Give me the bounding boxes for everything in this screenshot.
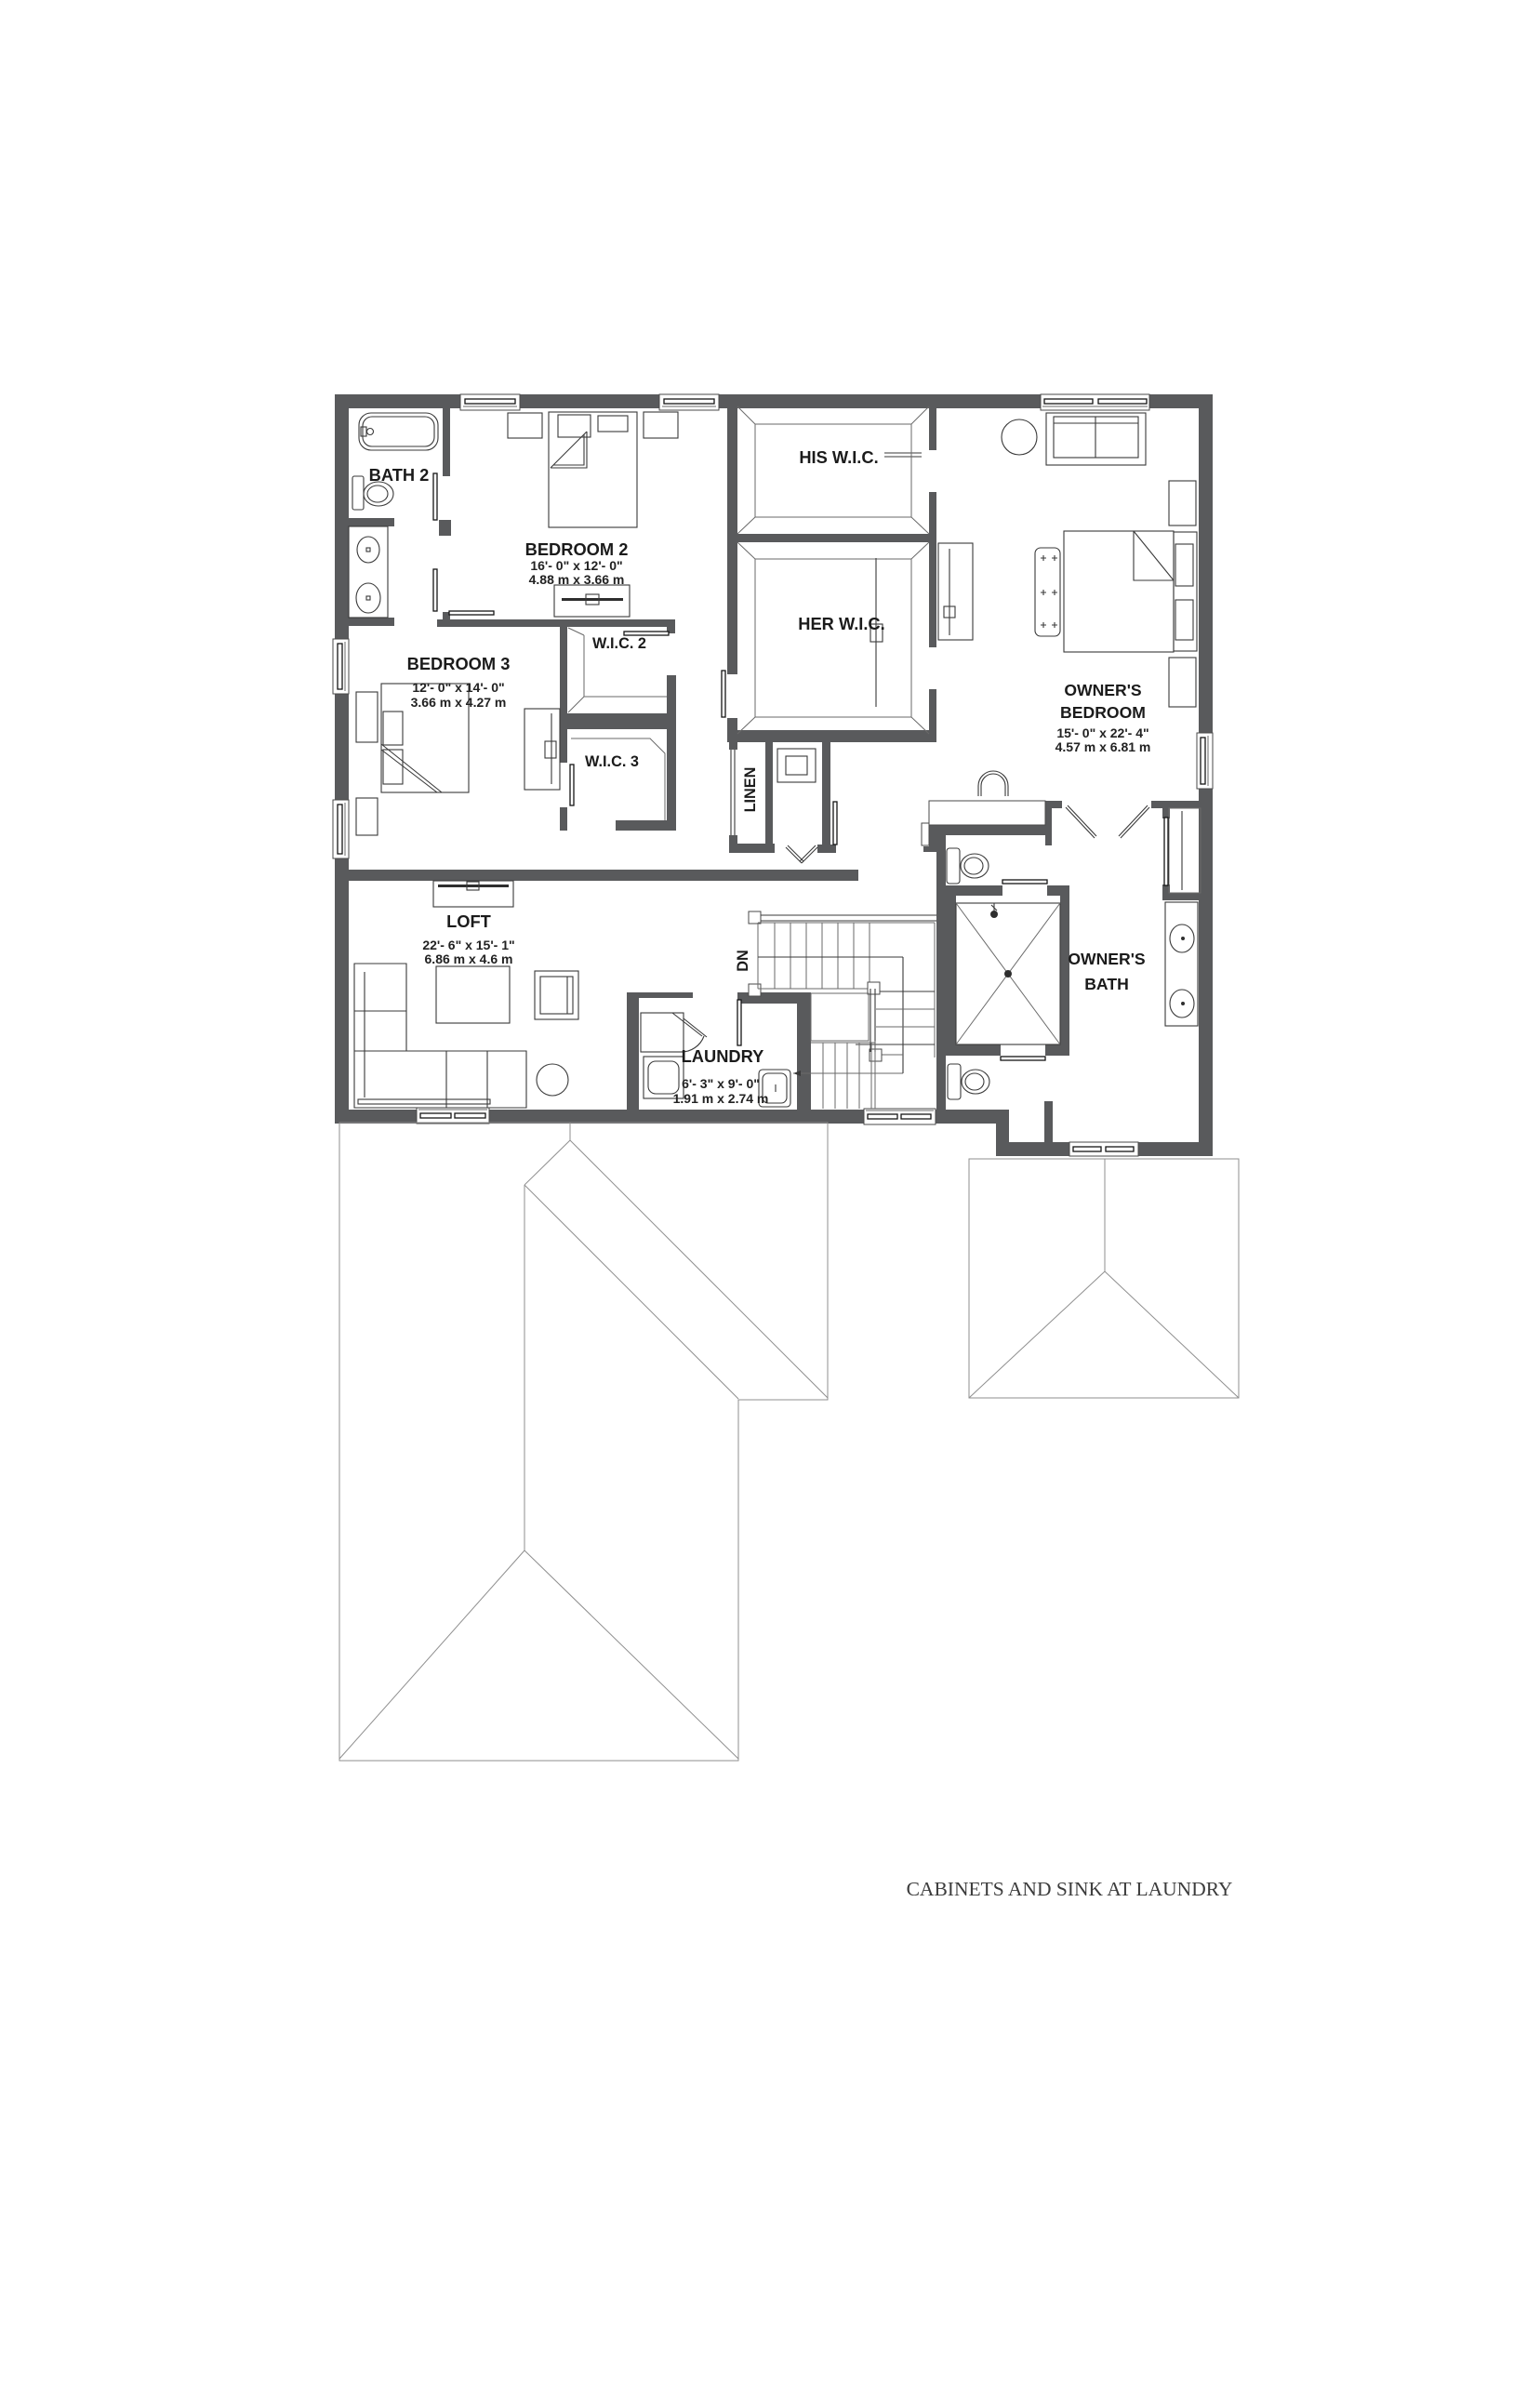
- svg-text:OWNER'S: OWNER'S: [1064, 681, 1142, 699]
- svg-text:4.57 m x 6.81 m: 4.57 m x 6.81 m: [1055, 739, 1151, 754]
- svg-text:BEDROOM: BEDROOM: [1060, 703, 1146, 722]
- svg-text:OWNER'S: OWNER'S: [1068, 950, 1146, 968]
- svg-text:LAUNDRY: LAUNDRY: [682, 1046, 764, 1066]
- svg-text:16'- 0" x 12'- 0": 16'- 0" x 12'- 0": [530, 558, 622, 573]
- svg-text:4.88 m x 3.66 m: 4.88 m x 3.66 m: [529, 572, 625, 587]
- svg-text:BEDROOM 2: BEDROOM 2: [525, 539, 629, 559]
- svg-text:1.91 m x 2.74 m: 1.91 m x 2.74 m: [673, 1091, 769, 1106]
- svg-text:BATH 2: BATH 2: [369, 465, 430, 485]
- svg-text:3.66 m x 4.27 m: 3.66 m x 4.27 m: [411, 695, 507, 710]
- svg-text:W.I.C. 2: W.I.C. 2: [592, 635, 646, 652]
- svg-text:HER W.I.C.: HER W.I.C.: [798, 614, 884, 633]
- svg-text:12'- 0" x 14'- 0": 12'- 0" x 14'- 0": [412, 680, 504, 695]
- svg-text:22'- 6" x 15'- 1": 22'- 6" x 15'- 1": [422, 938, 514, 952]
- svg-text:BEDROOM 3: BEDROOM 3: [407, 654, 511, 673]
- svg-text:DN: DN: [735, 950, 751, 972]
- svg-text:CABINETS AND SINK AT LAUNDRY: CABINETS AND SINK AT LAUNDRY: [907, 1878, 1233, 1900]
- svg-text:LOFT: LOFT: [446, 911, 491, 931]
- svg-text:HIS W.I.C.: HIS W.I.C.: [799, 447, 878, 467]
- svg-text:6.86 m x 4.6 m: 6.86 m x 4.6 m: [425, 951, 513, 966]
- svg-text:6'- 3" x 9'- 0": 6'- 3" x 9'- 0": [682, 1076, 760, 1091]
- svg-text:BATH: BATH: [1084, 975, 1129, 993]
- svg-text:LINEN: LINEN: [742, 767, 759, 813]
- svg-text:15'- 0" x 22'- 4": 15'- 0" x 22'- 4": [1056, 725, 1148, 740]
- svg-text:W.I.C. 3: W.I.C. 3: [585, 753, 639, 770]
